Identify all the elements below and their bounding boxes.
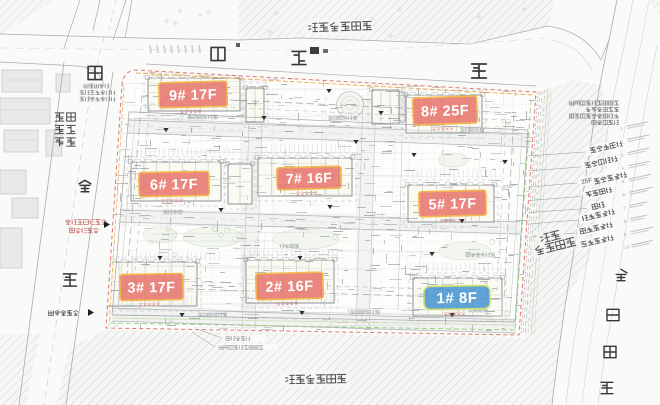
- svg-text:1# 8F: 1# 8F: [436, 290, 477, 308]
- svg-text:3# 17F: 3# 17F: [127, 280, 175, 297]
- svg-text:2# 16F: 2# 16F: [265, 279, 314, 296]
- svg-text:5# 17F: 5# 17F: [428, 196, 477, 213]
- svg-text:7# 16F: 7# 16F: [286, 169, 333, 186]
- svg-text:6# 17F: 6# 17F: [150, 177, 198, 194]
- svg-text:9# 17F: 9# 17F: [169, 87, 218, 104]
- svg-text:8# 25F: 8# 25F: [421, 103, 470, 121]
